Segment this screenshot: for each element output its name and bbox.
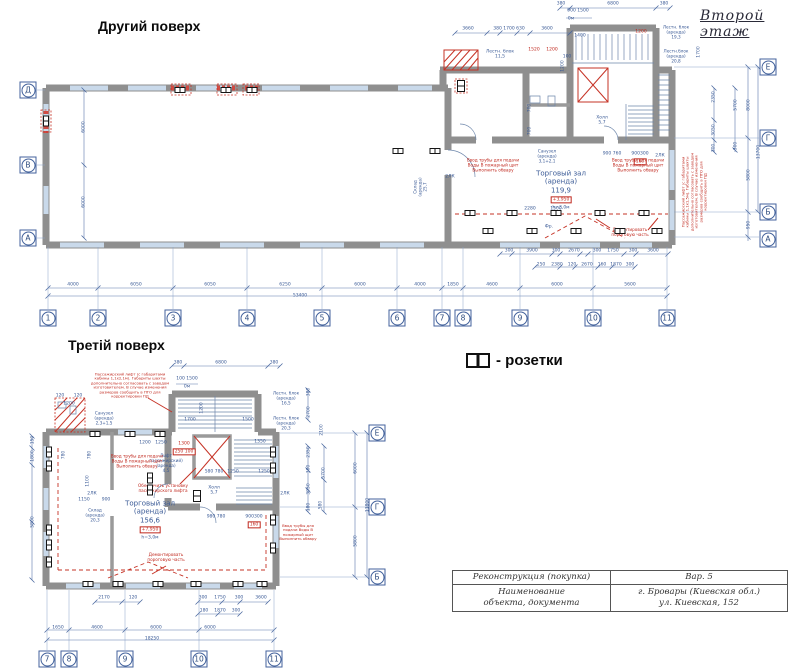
annotation: Демонтировать пороговую часть xyxy=(147,553,184,563)
dim-label: 18250 xyxy=(145,636,159,641)
socket-icon xyxy=(595,210,606,216)
dim-label: 1100 xyxy=(85,475,90,486)
dim-label: 2700 xyxy=(306,406,311,417)
dim-label: 6000 xyxy=(354,282,365,287)
axis-bubble-2: 2 xyxy=(90,310,107,327)
dim-label: 300 xyxy=(199,595,208,600)
dim-label: 13700 xyxy=(756,145,761,159)
dim-label: 300 xyxy=(593,248,602,253)
socket-icon xyxy=(46,540,52,551)
axis-bubble-10: 10 xyxy=(585,310,602,327)
upper-plan-walls xyxy=(46,28,672,245)
dim-label: 100 xyxy=(563,54,572,59)
socket-icon xyxy=(465,210,476,216)
socket-icon xyxy=(247,87,258,93)
socket-icon xyxy=(457,80,465,92)
dim-label: 2100 xyxy=(319,424,324,435)
dim-label: 6800 xyxy=(215,360,226,365)
dim-label: 4000 xyxy=(414,282,425,287)
socket-icon xyxy=(615,228,626,234)
axis-bubble-8: 8 xyxy=(455,310,472,327)
dim-label: 53400 xyxy=(293,293,307,298)
dim-label: 300 xyxy=(505,248,514,253)
dim-label: 1800 xyxy=(30,450,35,461)
dim-label: 1150 xyxy=(78,497,89,502)
axis-bubble-Б: Б xyxy=(369,569,386,586)
socket-icon xyxy=(191,581,202,587)
dim-label: 300 xyxy=(306,465,311,474)
dim-label: 1250 xyxy=(227,469,238,474)
dim-label: 6250 xyxy=(279,282,290,287)
dim-label: 300 xyxy=(232,608,241,613)
annotation: Пассажирский лифт (с габаритами кабины 1… xyxy=(91,373,169,400)
dim-label: 1200 xyxy=(546,47,557,52)
axis-bubble-11: 11 xyxy=(266,651,283,668)
dim-label: 160 xyxy=(248,521,261,528)
title-block-caption-line1: Наименование xyxy=(498,587,565,598)
socket-icon xyxy=(90,431,101,437)
socket-icon xyxy=(147,485,153,496)
generated-ticks xyxy=(30,6,761,651)
dim-label: 1350 xyxy=(254,439,265,444)
axis-bubble-9: 9 xyxy=(512,310,529,327)
dim-label: 150 xyxy=(30,436,35,445)
socket-icon xyxy=(43,116,49,127)
dim-label: 1250 xyxy=(155,440,166,445)
room-label: Санузел (аренда) 3,1+2,1 xyxy=(537,150,556,165)
dim-label: +3,950 xyxy=(551,196,572,203)
dim-label: 6000 xyxy=(551,282,562,287)
dim-label: h=3,0м xyxy=(141,535,158,540)
dim-label: 380 xyxy=(557,1,566,6)
dim-label: 4000 xyxy=(67,282,78,287)
dim-label: 6000 xyxy=(81,121,86,132)
dim-label: 180 xyxy=(200,608,209,613)
socket-icon xyxy=(113,581,124,587)
axis-bubble-В: В xyxy=(20,157,37,174)
socket-icon xyxy=(652,228,663,234)
socket-icon xyxy=(527,228,538,234)
dim-label: 780 xyxy=(61,451,66,460)
dim-label: 5800 xyxy=(746,169,751,180)
axis-bubble-Е: Е xyxy=(369,425,386,442)
dim-label: 300 xyxy=(235,595,244,600)
socket-icon xyxy=(270,543,276,554)
dim-label: 1700 xyxy=(184,417,195,422)
dim-label: 300 xyxy=(552,248,561,253)
room-label: Лестн.блок (аренда) 20,8 xyxy=(664,50,689,65)
dim-label: 900 760 xyxy=(603,151,622,156)
socket-icon xyxy=(393,148,404,154)
title-block-doc-type: Реконструкция (покупка) xyxy=(453,571,611,585)
socket-icon xyxy=(483,228,494,234)
dim-label: 250 xyxy=(537,262,546,267)
dim-label: 3660 xyxy=(462,26,473,31)
dim-label: 120 xyxy=(129,595,138,600)
dim-label: 1200 xyxy=(199,402,204,413)
room-label: Лестн. блок (аренда) 20,3 xyxy=(273,417,299,432)
dim-label: 120 xyxy=(568,262,577,267)
dim-label: 2670 xyxy=(568,248,579,253)
title-block-variant: Вар. 5 xyxy=(611,571,787,585)
annotation: Ввод трубы для подачи Воды В пожарный щи… xyxy=(467,159,519,174)
dim-label: 1520 xyxy=(528,47,539,52)
dim-label: 1700 xyxy=(696,46,701,57)
dim-label: 380 1700 630 xyxy=(493,26,525,31)
room-label: Холл 5,7 xyxy=(596,116,608,127)
socket-icon xyxy=(430,148,441,154)
dim-label: 2350 xyxy=(711,91,716,102)
axis-bubble-Г: Г xyxy=(369,499,386,516)
dim-label: 780 xyxy=(87,451,92,460)
room-label: Лестн. блок (аренда) 19,3 xyxy=(663,26,689,41)
axis-bubble-8: 8 xyxy=(61,651,78,668)
axis-bubble-А: А xyxy=(20,230,37,247)
upper-plan-title: Другий поверх xyxy=(98,18,200,34)
socket-icon xyxy=(83,581,94,587)
dim-label: 580 xyxy=(318,501,323,510)
dim-label: 6000 xyxy=(81,196,86,207)
dim-label: 300 xyxy=(626,262,635,267)
dim-label: 3050 xyxy=(306,483,311,494)
axis-bubble-4: 4 xyxy=(239,310,256,327)
title-block-address-line1: г. Бровары (Киевская обл.) xyxy=(638,587,760,598)
dim-label: 100 1500 xyxy=(176,376,197,381)
room-label: Торговый зал (аренда) 156,6 xyxy=(125,500,175,525)
dim-label: 4600 xyxy=(91,625,102,630)
dim-label: 6050 xyxy=(204,282,215,287)
dim-label: 950 xyxy=(746,221,751,230)
socket-icon xyxy=(221,87,232,93)
room-label: Склад (аренда) 25,7 xyxy=(414,177,429,196)
socket-icon xyxy=(46,447,52,458)
socket-icon xyxy=(270,447,276,458)
dim-label: 0м xyxy=(568,16,574,21)
socket-icon xyxy=(46,557,52,568)
dim-label: 6000 xyxy=(150,625,161,630)
upper-plan-windows xyxy=(46,88,672,245)
axis-bubble-А: А xyxy=(760,231,777,248)
dim-label: 5800 xyxy=(353,535,358,546)
dim-label: 2ЛК xyxy=(280,491,289,496)
title-block-address: г. Бровары (Киевская обл.) ул. Киевская,… xyxy=(611,585,787,611)
dim-label: 6000 xyxy=(204,625,215,630)
floor-note-handwritten: Второй этаж xyxy=(700,8,790,40)
dim-label: 1200 xyxy=(560,60,565,71)
dim-label: 0м xyxy=(184,384,190,389)
dim-label: 120 xyxy=(56,393,65,398)
dim-label: 1400 xyxy=(574,33,585,38)
annotation: Ввод трубы для подачи Воды В пожарный щи… xyxy=(612,159,664,174)
dim-label: 900300 xyxy=(631,151,648,156)
axis-bubble-Б: Б xyxy=(760,204,777,221)
upper-plan-demolition xyxy=(41,50,668,238)
title-block: Реконструкция (покупка) Вар. 5 Наименова… xyxy=(452,570,788,612)
room-label: Лестн. блок (аренда) 16,5 xyxy=(273,392,299,407)
dim-label: 380 xyxy=(660,1,669,6)
dim-label: 2280 xyxy=(524,206,535,211)
dim-label: 180 xyxy=(306,503,311,512)
dim-label: 1650 xyxy=(52,625,63,630)
dim-label: 6000 xyxy=(353,462,358,473)
room-label: Холл 5,7 xyxy=(208,486,220,497)
dim-label: 1200 xyxy=(139,440,150,445)
socket-icon xyxy=(571,228,582,234)
dim-label: 900300 xyxy=(245,514,262,519)
room-label: Лестн. блок 11,5 xyxy=(486,50,514,61)
dim-label: 2380 xyxy=(551,262,562,267)
annotation: Ввод трубы для подачи Воды В пожарный щи… xyxy=(279,524,316,542)
dim-label: 300 xyxy=(733,142,738,151)
axis-bubble-6: 6 xyxy=(389,310,406,327)
dim-label: 2350 xyxy=(306,446,311,457)
annotation: Ввод трубы для подачи Воды В пожарный щи… xyxy=(111,455,163,470)
dim-label: 1200 xyxy=(63,401,74,406)
annotation: Обеспечить установку пассажирского лифта xyxy=(138,484,188,494)
dim-label: 1300 xyxy=(178,441,189,446)
axis-bubble-9: 9 xyxy=(117,651,134,668)
dim-label: 1750 xyxy=(214,595,225,600)
dim-label: 380 xyxy=(270,360,279,365)
dim-label: 300 xyxy=(711,144,716,153)
axis-bubble-Е: Е xyxy=(760,59,777,76)
dim-label: 1870 xyxy=(610,262,621,267)
dim-label: 380 xyxy=(306,388,311,397)
annotation: Пассажирский лифт (с габаритами кабины 1… xyxy=(682,153,709,231)
socket-icon xyxy=(193,490,201,502)
socket-icon xyxy=(507,210,518,216)
axis-bubble-7: 7 xyxy=(39,651,56,668)
dim-label: 1250 xyxy=(258,469,269,474)
socket-icon xyxy=(125,431,136,437)
legend-sockets: - розетки xyxy=(466,352,563,369)
axis-bubble-5: 5 xyxy=(314,310,331,327)
dim-label: 3900 xyxy=(526,248,537,253)
dim-label: 5700 xyxy=(733,99,738,110)
dim-label: 580 780 xyxy=(205,469,224,474)
dim-label: 160 xyxy=(598,262,607,267)
dim-label: 6050 xyxy=(130,282,141,287)
dim-label: 300 xyxy=(629,248,638,253)
axis-bubble-Г: Г xyxy=(760,130,777,147)
dim-label: 1500 xyxy=(242,417,253,422)
dim-label: 3600 xyxy=(647,248,658,253)
dim-label: 1870 xyxy=(214,608,225,613)
dim-label: 700 xyxy=(527,104,532,113)
dim-label: 3600 xyxy=(541,26,552,31)
socket-icon xyxy=(551,210,562,216)
axis-bubble-3: 3 xyxy=(165,310,182,327)
lower-plan-title: Третій поверх xyxy=(68,337,165,353)
dim-label: 2170 xyxy=(98,595,109,600)
dim-label: 3050 xyxy=(711,124,716,135)
dim-label: 5700 xyxy=(321,467,326,478)
title-block-caption: Наименование объекта, документа xyxy=(453,585,611,611)
dim-label: 1850 xyxy=(447,282,458,287)
socket-icon xyxy=(270,463,276,474)
socket-icon xyxy=(639,210,650,216)
dim-label: 980 780 xyxy=(207,514,226,519)
socket-icon xyxy=(466,353,490,368)
socket-icon xyxy=(147,473,153,484)
dim-label: 5800 xyxy=(30,516,35,527)
dim-label: 5600 xyxy=(624,282,635,287)
axis-bubble-1: 1 xyxy=(40,310,57,327)
room-label: Санузел (аренда) 2,3+1,5 xyxy=(94,412,113,427)
socket-icon xyxy=(270,515,276,526)
room-label: Торговый зал (аренда) 119,9 xyxy=(536,170,586,195)
dim-label: 4600 xyxy=(486,282,497,287)
socket-icon xyxy=(153,581,164,587)
axis-bubble-7: 7 xyxy=(434,310,451,327)
dim-label: 1750 xyxy=(607,248,618,253)
dim-label: 3600 xyxy=(255,595,266,600)
dim-label: 380 xyxy=(174,360,183,365)
dim-label: 2670 xyxy=(581,262,592,267)
dim-label: 1200 xyxy=(635,29,646,34)
socket-icon xyxy=(46,461,52,472)
axis-bubble-Д: Д xyxy=(20,82,37,99)
dim-label: Фр. xyxy=(545,224,553,229)
axis-bubble-10: 10 xyxy=(191,651,208,668)
dim-label: +7,950 xyxy=(140,526,161,533)
socket-icon xyxy=(257,581,268,587)
dim-label: 900 xyxy=(102,497,111,502)
dim-label: 6800 xyxy=(607,1,618,6)
legend-label: - розетки xyxy=(496,352,563,369)
dim-label: 2ЛК xyxy=(87,491,96,496)
title-block-caption-line2: объекта, документа xyxy=(484,598,580,609)
dim-label: 900 1500 xyxy=(567,8,588,13)
socket-icon xyxy=(175,87,186,93)
room-label: Склад (аренда) 20,3 xyxy=(85,509,104,524)
socket-icon xyxy=(46,525,52,536)
dim-label: 8000 xyxy=(746,99,751,110)
dim-label: 2ЛК xyxy=(445,174,454,179)
axis-bubble-11: 11 xyxy=(659,310,676,327)
floor-plan-drawing: Другий поверх Второй этаж Третій поверх … xyxy=(0,0,790,670)
socket-icon xyxy=(155,431,166,437)
dim-label: 120 xyxy=(74,393,83,398)
socket-icon xyxy=(233,581,244,587)
title-block-address-line2: ул. Киевская, 152 xyxy=(659,598,739,609)
dim-label: 700 xyxy=(527,127,532,136)
